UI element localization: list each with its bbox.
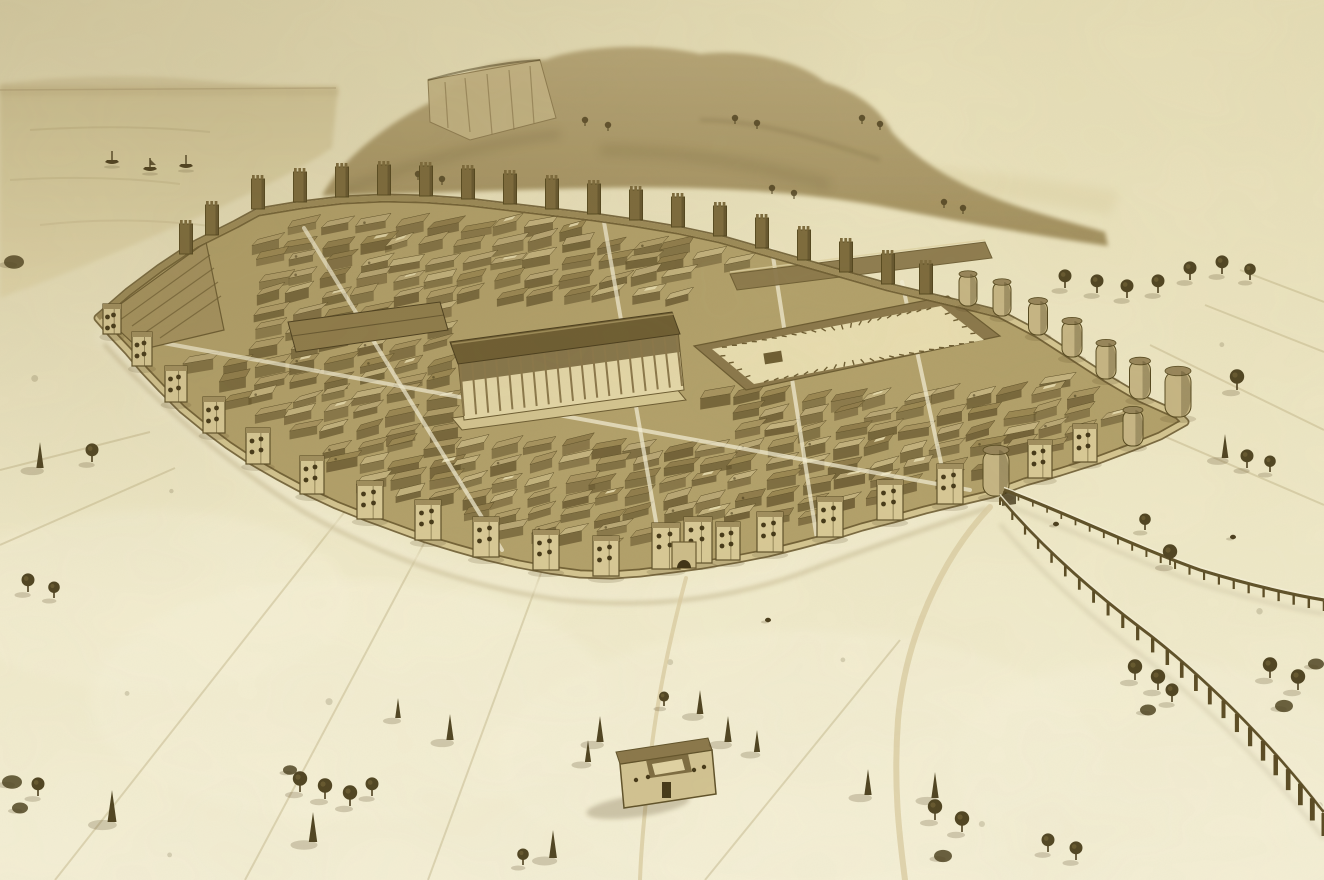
corner-vignette xyxy=(0,0,900,600)
city-illustration: Aerial reconstruction drawing of a forti… xyxy=(0,0,1324,880)
illustration-root: Aerial reconstruction drawing of a forti… xyxy=(0,0,1324,880)
